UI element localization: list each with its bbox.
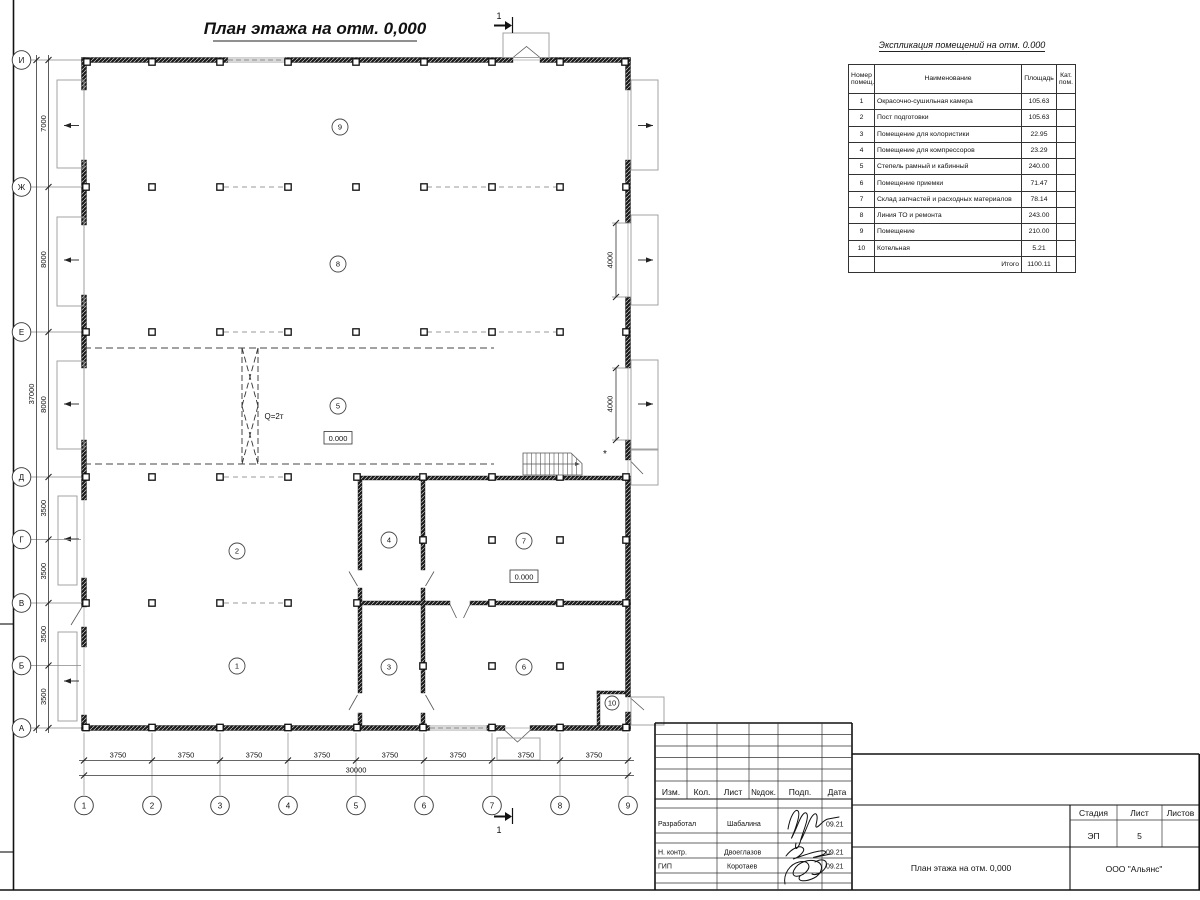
explication-table: Номер помещ. Наименование Площадь Кат. п…: [848, 64, 1076, 273]
section-mark-bottom: 1: [496, 825, 501, 835]
zone-lines: [84, 187, 556, 603]
axis-1: 1: [82, 802, 87, 811]
dim-left-total: 37000: [27, 384, 36, 405]
room-area: 243.00: [1022, 208, 1057, 224]
room-area: 78.14: [1022, 191, 1057, 207]
total-area: 1100.11: [1022, 256, 1057, 272]
col-header-cat: Кат. пом.: [1057, 65, 1076, 94]
axis-bubbles-bottom: 1 2 3 4 5 6 7 8 9: [75, 796, 638, 815]
dimensions-bottom: 3750 3750 3750 3750 3750 3750 3750 3750 …: [79, 751, 634, 779]
opening-sills: [84, 60, 628, 728]
room-name: Помещение приемки: [875, 175, 1022, 191]
room-area: 23.29: [1022, 142, 1057, 158]
dim-4-5: 3750: [314, 751, 331, 760]
room-num: 4: [849, 142, 875, 158]
dim-d-g: 3500: [39, 500, 48, 517]
room-name: Линия ТО и ремонта: [875, 208, 1022, 224]
room-area: 105.63: [1022, 110, 1057, 126]
room-num: 2: [849, 110, 875, 126]
table-row: 1Окрасочно-сушильная камера105.63: [849, 94, 1076, 110]
table-row: 4Помещение для компрессоров23.29: [849, 142, 1076, 158]
dim-g-v: 3500: [39, 563, 48, 580]
room-name: Склад запчастей и расходных материалов: [875, 191, 1022, 207]
dim-6-7: 3750: [450, 751, 467, 760]
room-1-label: 1: [235, 662, 239, 671]
room-num: 10: [849, 240, 875, 256]
page-title: План этажа на отм. 0,000: [204, 19, 427, 38]
dim-5-6: 3750: [382, 751, 399, 760]
dim-1-2: 3750: [110, 751, 127, 760]
staircase: *: [523, 449, 607, 475]
table-row: 7Склад запчастей и расходных материалов7…: [849, 191, 1076, 207]
tb-company: ООО "Альянс": [1106, 864, 1163, 874]
tb-name-ncontrol: Двоеглазов: [724, 850, 761, 857]
table-row: 5Степель рамный и кабинный240.00: [849, 159, 1076, 175]
axis-e: Е: [19, 328, 24, 337]
table-total-row: Итого1100.11: [849, 256, 1076, 272]
axis-b: Б: [19, 662, 24, 671]
tb-doc-title: План этажа на отм. 0,000: [911, 863, 1012, 873]
dim-b-a: 3500: [39, 688, 48, 705]
plan-title: План этажа на отм. 0,000: [204, 19, 427, 41]
axis-lines: [31, 60, 628, 795]
room-name: Степель рамный и кабинный: [875, 159, 1022, 175]
room-area: 22.95: [1022, 126, 1057, 142]
tb-name-gip: Коротаев: [727, 864, 758, 871]
dim-i-zh: 7000: [39, 115, 48, 132]
section-mark-top: 1: [496, 11, 501, 21]
tb-sheet-value: 5: [1137, 831, 1142, 841]
room-9-label: 9: [338, 123, 342, 132]
room-area: 5.21: [1022, 240, 1057, 256]
section-marks: 1 1: [494, 11, 513, 835]
door-leaves: [71, 47, 644, 743]
tb-col-ndok: №док.: [751, 787, 776, 797]
room-4-label: 4: [387, 536, 391, 545]
room-2-label: 2: [235, 547, 239, 556]
columns: [83, 59, 629, 731]
tb-sheets-label: Листов: [1167, 808, 1195, 818]
tb-role-ncontrol: Н. контр.: [658, 850, 687, 857]
table-row: 2Пост подготовки105.63: [849, 110, 1076, 126]
tb-name-developer: Шабалина: [727, 820, 761, 828]
dim-bottom-total: 30000: [346, 766, 367, 775]
table-row: 6Помещение приемки71.47: [849, 175, 1076, 191]
tb-col-izm: Изм.: [662, 787, 680, 797]
tb-stage-label: Стадия: [1079, 808, 1108, 818]
col-header-name: Наименование: [875, 65, 1022, 94]
signature-ncontrol: [786, 847, 831, 859]
room-name: Котельная: [875, 240, 1022, 256]
axis-3: 3: [218, 802, 223, 811]
room-name: Помещение для колористики: [875, 126, 1022, 142]
tb-role-gip: ГИП: [658, 864, 672, 871]
room-8-label: 8: [336, 260, 340, 269]
signature-gip: [785, 860, 827, 884]
axis-9: 9: [626, 802, 631, 811]
dim-e-d: 8000: [39, 396, 48, 413]
dimensions-left: 7000 8000 8000 3500 3500 3500 3500 37000: [27, 55, 52, 733]
room-3-label: 3: [387, 663, 391, 672]
elevation-mark-room5: 0.000: [329, 434, 348, 443]
note-asterisk: *: [603, 449, 607, 460]
room-num: 3: [849, 126, 875, 142]
room-num: 1: [849, 94, 875, 110]
drawing-sheet: План этажа на отм. 0,000: [0, 0, 1200, 900]
room-area: 240.00: [1022, 159, 1057, 175]
room-num: 5: [849, 159, 875, 175]
axis-zh: Ж: [18, 183, 26, 192]
crane-capacity-label: Q=2т: [265, 412, 284, 421]
tb-col-kol: Кол.: [694, 787, 711, 797]
room-num: 7: [849, 191, 875, 207]
crane-symbol: Q=2т: [242, 348, 284, 464]
tb-role-developer: Разработал: [658, 820, 696, 828]
elevation-mark-room7: 0.000: [515, 572, 534, 581]
room-5-label: 5: [336, 402, 340, 411]
axis-d: Д: [19, 473, 25, 482]
axis-a: А: [19, 724, 25, 733]
room-name: Помещение для компрессоров: [875, 142, 1022, 158]
room-10-label: 10: [608, 699, 616, 708]
room-num: 8: [849, 208, 875, 224]
axis-i: И: [19, 56, 25, 65]
dim-gate-2: 4000: [606, 396, 615, 413]
room-num: 6: [849, 175, 875, 191]
tb-col-list: Лист: [724, 787, 743, 797]
room-area: 210.00: [1022, 224, 1057, 240]
tb-date-ncontrol: 09.21: [826, 850, 844, 857]
walls: [82, 58, 631, 731]
room-area: 71.47: [1022, 175, 1057, 191]
tb-stage-value: ЭП: [1087, 831, 1099, 841]
tb-col-podp: Подп.: [789, 787, 812, 797]
dim-3-4: 3750: [246, 751, 263, 760]
axis-7: 7: [490, 802, 495, 811]
total-label: Итого: [875, 256, 1022, 272]
axis-2: 2: [150, 802, 155, 811]
axis-g: Г: [19, 536, 24, 545]
dim-2-3: 3750: [178, 751, 195, 760]
tb-sheet-label: Лист: [1130, 808, 1149, 818]
title-block: Изм. Кол. Лист №док. Подп. Дата Разработ…: [655, 723, 1199, 890]
dim-v-b: 3500: [39, 626, 48, 643]
axis-v: В: [19, 599, 24, 608]
explication-title: Экспликация помещений на отм. 0.000: [846, 40, 1078, 50]
dim-8-9: 3750: [586, 751, 603, 760]
dim-gate-1: 4000: [606, 252, 615, 269]
room-name: Помещение: [875, 224, 1022, 240]
axis-5: 5: [354, 802, 359, 811]
axis-8: 8: [558, 802, 563, 811]
axis-4: 4: [286, 802, 291, 811]
room-6-label: 6: [522, 663, 526, 672]
room-name: Пост подготовки: [875, 110, 1022, 126]
tb-date-developer: 09.21: [826, 822, 844, 829]
table-row: 9Помещение210.00: [849, 224, 1076, 240]
table-row: 8Линия ТО и ремонта243.00: [849, 208, 1076, 224]
room-num: 9: [849, 224, 875, 240]
tb-date-gip: 09.21: [826, 864, 844, 871]
room-7-label: 7: [522, 537, 526, 546]
col-header-area: Площадь: [1022, 65, 1057, 94]
dim-7-8: 3750: [518, 751, 535, 760]
axis-6: 6: [422, 802, 427, 811]
table-row: 10Котельная5.21: [849, 240, 1076, 256]
col-header-number: Номер помещ.: [849, 65, 875, 94]
tb-col-data: Дата: [828, 787, 847, 797]
table-row: 3Помещение для колористики22.95: [849, 126, 1076, 142]
room-name: Окрасочно-сушильная камера: [875, 94, 1022, 110]
dim-zh-e: 8000: [39, 251, 48, 268]
room-area: 105.63: [1022, 94, 1057, 110]
